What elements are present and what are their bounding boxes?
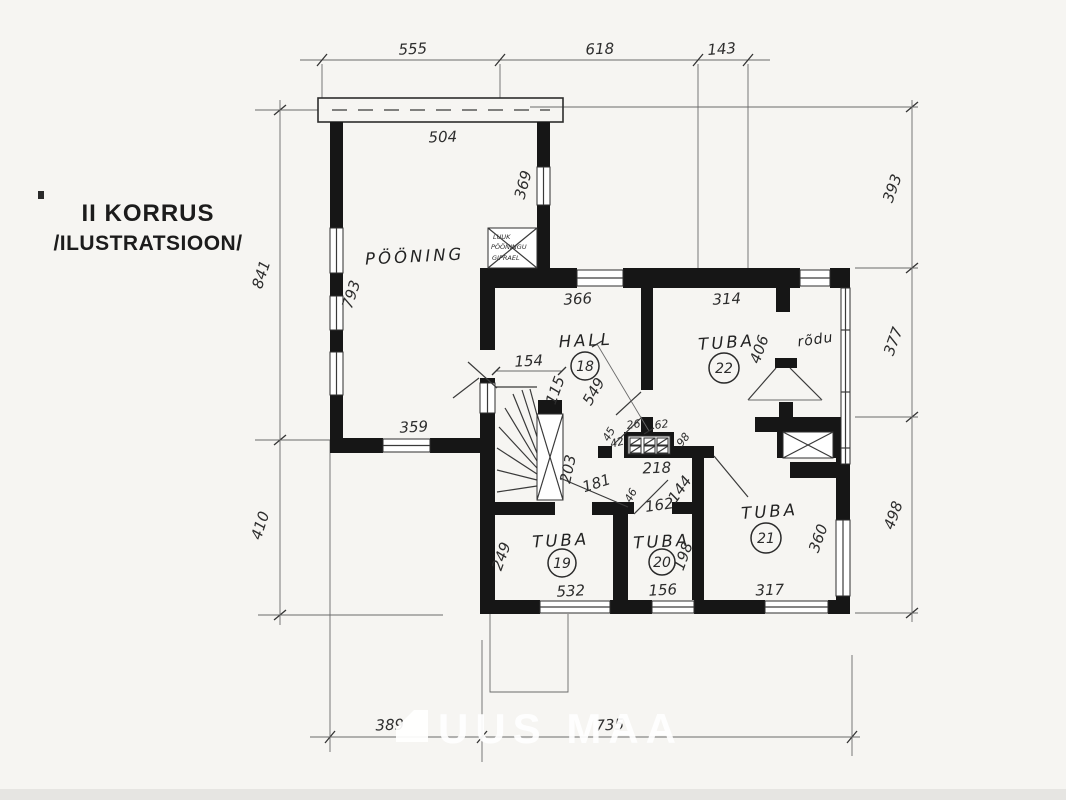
hatch-box: LUUK PÖÖNINGU GIPRAEL [488, 228, 537, 268]
roof-outline [318, 98, 563, 122]
window [765, 601, 828, 613]
chimney-flues [628, 436, 670, 454]
dim-label: 181 [580, 470, 613, 496]
dim-label: 410 [247, 509, 273, 542]
window [480, 383, 495, 413]
window [540, 601, 610, 613]
floorplan-page: II KORRUS /ILUSTRATSIOON/ [0, 0, 1066, 800]
dim-label: 366 [563, 289, 593, 308]
dim-label: 618 [585, 40, 614, 59]
dim-label: 46 [622, 486, 640, 504]
dim-label: 156 [648, 580, 678, 599]
inner-measure-lines [490, 341, 654, 692]
room-number-20: 20 [653, 555, 671, 571]
dim-label: 359 [399, 417, 429, 436]
window [836, 520, 850, 596]
dim-label: 218 [642, 459, 671, 478]
room-label-tuba22: TUBA [698, 331, 756, 354]
window [330, 228, 343, 273]
dim-label: 504 [428, 128, 457, 147]
hatch-note-2: PÖÖNINGU [491, 242, 527, 251]
dim-label: 369 [511, 169, 536, 201]
dimension-lines [255, 54, 918, 762]
dim-label: 317 [755, 580, 785, 599]
watermark: UUS MAA [396, 705, 683, 752]
dim-label: 115 [542, 374, 569, 407]
dim-label: 498 [880, 499, 907, 532]
room-label-tuba19: TUBA [532, 530, 590, 552]
dim-label: 841 [248, 258, 274, 291]
window [537, 167, 550, 205]
paper-edge [0, 789, 1066, 800]
room-label-tuba21: TUBA [741, 500, 799, 523]
scan-artifact [38, 191, 44, 199]
watermark-text: UUS MAA [438, 705, 683, 752]
room-label-hall: HALL [558, 330, 613, 352]
room-number-21: 21 [757, 531, 775, 547]
floorplan-svg: LUUK PÖÖNINGU GIPRAEL [0, 0, 1066, 800]
balcony-railing [841, 288, 850, 464]
hatch-note-1: LUUK [493, 233, 511, 241]
dim-label: 154 [514, 351, 544, 370]
room-labels: PÖÖNING HALL 18 TUBA 22 rõdu TUBA 19 TUB… [365, 244, 835, 577]
dim-label: 26 [626, 417, 642, 432]
room-label-rodu: rõdu [796, 330, 834, 351]
window [577, 270, 623, 286]
dim-label: 143 [707, 39, 737, 59]
room-number-18: 18 [576, 359, 594, 375]
window [800, 270, 830, 286]
dim-label: 393 [879, 172, 906, 205]
dim-label: 62 [654, 417, 670, 432]
dim-label: 360 [805, 522, 832, 555]
window [652, 601, 694, 613]
dim-label: 555 [398, 39, 428, 58]
window [383, 439, 430, 452]
crossed-box [783, 432, 833, 458]
room-number-22: 22 [715, 361, 733, 377]
dimension-labels: 555 618 143 504 793 369 359 841 410 393 … [247, 39, 907, 735]
hatch-note-3: GIPRAEL [492, 254, 520, 262]
room-label-poening: PÖÖNING [365, 244, 465, 268]
dim-label: 377 [880, 324, 907, 357]
window [330, 352, 343, 395]
dim-label: 532 [556, 581, 586, 600]
dim-label: 314 [712, 289, 742, 308]
room-number-19: 19 [553, 556, 571, 572]
